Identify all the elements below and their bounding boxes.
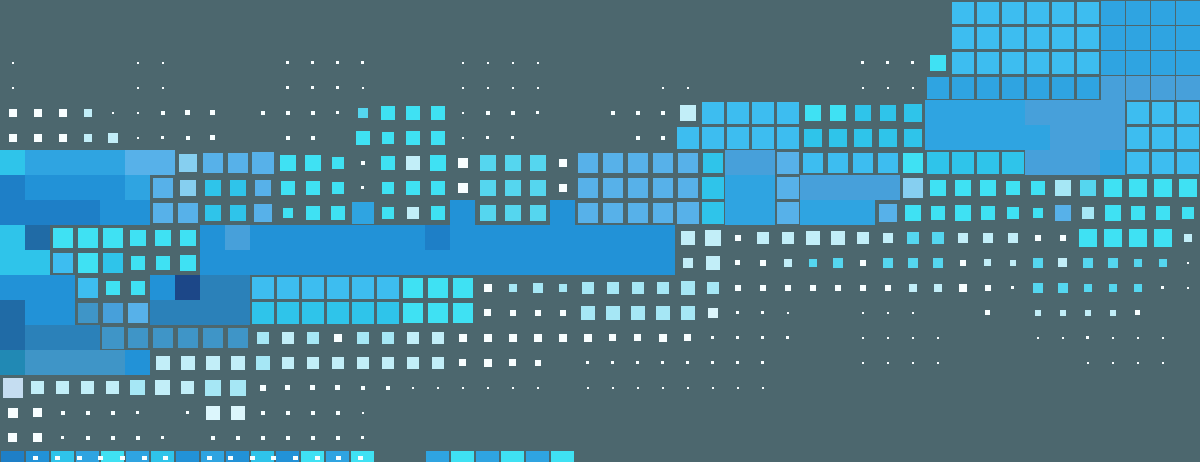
mosaic-tile [980, 180, 996, 196]
mosaic-tile [102, 327, 124, 349]
mosaic-tile [905, 205, 921, 221]
mosaic-tile [59, 109, 67, 117]
mosaic-tile [282, 332, 294, 344]
mosaic-tile [1008, 233, 1018, 243]
mosaic-tile [575, 250, 600, 275]
mosaic-tile [78, 253, 98, 273]
mosaic-tile [103, 303, 123, 323]
mosaic-tile [178, 203, 198, 223]
mosaic-tile [535, 360, 541, 366]
mosaic-tile [53, 253, 73, 273]
mosaic-tile [880, 105, 896, 121]
mosaic-tile [200, 225, 225, 250]
mosaic-tile [486, 111, 490, 115]
mosaic-tile [106, 281, 120, 295]
mosaic-tile [1137, 362, 1139, 364]
mosaic-tile [75, 175, 100, 200]
mosaic-tile [985, 285, 991, 291]
mosaic-tile [163, 456, 168, 460]
mosaic-tile [1055, 180, 1071, 196]
mosaic-tile [1176, 51, 1200, 75]
mosaic-tile [286, 61, 289, 64]
mosaic-tile [512, 387, 514, 389]
mosaic-tile [1161, 286, 1164, 289]
mosaic-tile [437, 387, 439, 389]
mosaic-tile [1052, 77, 1074, 99]
mosaic-tile [1002, 27, 1024, 49]
mosaic-tile [476, 451, 499, 462]
mosaic-tile [180, 230, 196, 246]
mosaic-tile [509, 334, 517, 342]
mosaic-tile [1137, 337, 1139, 339]
mosaic-tile [3, 378, 23, 398]
mosaic-tile [0, 200, 25, 225]
mosaic-tile [1179, 179, 1197, 197]
mosaic-tile [862, 362, 864, 364]
mosaic-tile [181, 381, 194, 394]
mosaic-tile [606, 306, 620, 320]
mosaic-tile [703, 153, 723, 173]
mosaic-tile [325, 225, 350, 250]
mosaic-tile [825, 200, 850, 225]
mosaic-tile [1033, 283, 1043, 293]
mosaic-tile [727, 127, 749, 149]
mosaic-tile [487, 387, 489, 389]
mosaic-tile [1035, 310, 1041, 316]
mosaic-tile [912, 362, 914, 364]
mosaic-tile [150, 150, 175, 175]
mosaic-tile [358, 456, 363, 460]
mosaic-tile [25, 325, 50, 350]
mosaic-tile [1100, 125, 1125, 150]
mosaic-tile [1131, 206, 1145, 220]
mosaic-tile [25, 350, 50, 375]
mosaic-tile [142, 456, 147, 460]
mosaic-tile [650, 250, 675, 275]
mosaic-tile [678, 178, 698, 198]
mosaic-tile [336, 61, 339, 64]
mosaic-tile [286, 436, 290, 440]
mosaic-tile [1112, 337, 1114, 339]
mosaic-tile [462, 137, 464, 139]
mosaic-tile [983, 233, 993, 243]
mosaic-tile [1000, 100, 1025, 125]
mosaic-tile [475, 250, 500, 275]
mosaic-tile [1101, 51, 1125, 75]
mosaic-tile [512, 87, 514, 89]
mosaic-tile [885, 285, 891, 291]
mosaic-tile [761, 311, 764, 314]
mosaic-tile [977, 2, 999, 24]
mosaic-tile [725, 200, 750, 225]
mosaic-tile [505, 180, 521, 196]
mosaic-tile [300, 225, 325, 250]
mosaic-tile [75, 325, 100, 350]
mosaic-tile [1060, 310, 1066, 316]
mosaic-tile [257, 332, 269, 344]
mosaic-tile [137, 62, 139, 64]
mosaic-tile [78, 303, 98, 323]
mosaic-tile [1176, 76, 1200, 100]
mosaic-tile [282, 357, 294, 369]
mosaic-tile [230, 205, 246, 221]
mosaic-tile [835, 285, 841, 291]
mosaic-tile [31, 381, 44, 394]
mosaic-tile [1050, 100, 1075, 125]
mosaic-tile [403, 278, 423, 298]
mosaic-tile [50, 300, 75, 325]
mosaic-tile [661, 136, 665, 140]
mosaic-tile [205, 180, 221, 196]
mosaic-tile [934, 284, 942, 292]
mosaic-tile [803, 153, 823, 173]
mosaic-tile [530, 205, 546, 221]
mosaic-tile [130, 380, 145, 395]
mosaic-tile [702, 127, 724, 149]
mosaic-tile [406, 106, 420, 120]
mosaic-tile [203, 153, 223, 173]
mosaic-tile [180, 180, 196, 196]
mosaic-tile [1025, 125, 1050, 150]
mosaic-tile [977, 27, 999, 49]
mosaic-tile [1101, 76, 1125, 100]
mosaic-tile [1084, 284, 1092, 292]
mosaic-tile [950, 125, 975, 150]
mosaic-tile [403, 303, 423, 323]
mosaic-tile [260, 385, 266, 391]
mosaic-tile [550, 225, 575, 250]
mosaic-tile [150, 300, 175, 325]
mosaic-tile [1127, 102, 1149, 124]
mosaic-tile [12, 62, 14, 64]
mosaic-tile [55, 456, 60, 460]
mosaic-tile [1127, 127, 1149, 149]
mosaic-tile [136, 411, 139, 414]
mosaic-tile [231, 356, 245, 370]
mosaic-tile [862, 87, 864, 89]
mosaic-tile [181, 356, 195, 370]
mosaic-tile [600, 250, 625, 275]
mosaic-tile [25, 250, 50, 275]
mosaic-tile [681, 231, 695, 245]
mosaic-tile [175, 275, 200, 300]
mosaic-tile [611, 111, 615, 115]
mosaic-tile [382, 357, 394, 369]
mosaic-tile [702, 177, 724, 199]
mosaic-tile [311, 136, 315, 140]
mosaic-tile [825, 175, 850, 200]
mosaic-tile [828, 153, 848, 173]
mosaic-tile [1007, 207, 1019, 219]
mosaic-tile [53, 228, 73, 248]
mosaic-tile [887, 362, 889, 364]
mosaic-tile [861, 61, 864, 64]
mosaic-tile [887, 87, 889, 89]
mosaic-tile [550, 250, 575, 275]
mosaic-tile [952, 77, 974, 99]
mosaic-tile [161, 136, 164, 139]
mosaic-tile [1159, 259, 1167, 267]
mosaic-tile [786, 336, 789, 339]
mosaic-tile [480, 180, 496, 196]
mosaic-tile [1058, 258, 1067, 267]
mosaic-tile [903, 153, 923, 173]
mosaic-tile [352, 302, 374, 324]
mosaic-tile [250, 250, 275, 275]
mosaic-tile [211, 436, 215, 440]
mosaic-tile [584, 334, 592, 342]
mosaic-tile [382, 332, 394, 344]
mosaic-tile [559, 334, 567, 342]
mosaic-tile [535, 310, 541, 316]
mosaic-tile [762, 387, 764, 389]
mosaic-tile [459, 359, 466, 366]
mosaic-tile [1176, 1, 1200, 25]
mosaic-tile [256, 356, 270, 370]
mosaic-tile [1126, 76, 1150, 100]
mosaic-tile [56, 381, 69, 394]
mosaic-tile [361, 386, 365, 390]
mosaic-tile [206, 406, 220, 420]
mosaic-tile [484, 334, 492, 342]
mosaic-tile [361, 436, 364, 439]
mosaic-tile [428, 278, 448, 298]
mosaic-tile [1134, 284, 1142, 292]
mosaic-tile [777, 102, 799, 124]
mosaic-tile [735, 260, 740, 265]
mosaic-tile [657, 282, 669, 294]
mosaic-tile [1083, 258, 1093, 268]
mosaic-tile [725, 175, 750, 200]
mosaic-tile [84, 109, 92, 117]
mosaic-tile [1126, 26, 1150, 50]
mosaic-tile [575, 225, 600, 250]
mosaic-tile [180, 255, 196, 271]
mosaic-tile [458, 183, 468, 193]
mosaic-tile [185, 110, 190, 115]
mosaic-tile [286, 111, 290, 115]
mosaic-tile [484, 359, 492, 367]
mosaic-tile [1151, 1, 1175, 25]
mosaic-tile [225, 225, 250, 250]
mosaic-tile [559, 159, 567, 167]
mosaic-tile [777, 127, 799, 149]
mosaic-tile [1035, 235, 1041, 241]
mosaic-tile [1006, 181, 1020, 195]
mosaic-tile [908, 258, 918, 268]
mosaic-tile [1156, 206, 1170, 220]
mosaic-tile [1077, 27, 1099, 49]
mosaic-tile [50, 350, 75, 375]
mosaic-tile [450, 250, 475, 275]
mosaic-tile [1184, 234, 1192, 242]
mosaic-tile [505, 155, 521, 171]
mosaic-tile [1082, 207, 1094, 219]
mosaic-tile [1126, 51, 1150, 75]
mosaic-tile [382, 207, 394, 219]
mosaic-tile [137, 87, 139, 89]
mosaic-tile [1109, 284, 1117, 292]
mosaic-tile [1187, 262, 1189, 264]
mosaic-tile [205, 380, 221, 396]
mosaic-tile [950, 100, 975, 125]
mosaic-tile [362, 87, 364, 89]
mosaic-tile [911, 61, 914, 64]
mosaic-tile [236, 436, 240, 440]
mosaic-tile [757, 232, 769, 244]
mosaic-tile [103, 253, 123, 273]
mosaic-tile [534, 334, 542, 342]
mosaic-tile [1110, 310, 1116, 316]
mosaic-tile [352, 277, 374, 299]
mosaic-tile [1000, 125, 1025, 150]
mosaic-tile [636, 361, 639, 364]
mosaic-tile [305, 155, 321, 171]
mosaic-tile [862, 312, 864, 314]
mosaic-tile [230, 180, 246, 196]
mosaic-tile [927, 152, 949, 174]
mosaic-tile [200, 300, 225, 325]
mosaic-tile [301, 451, 324, 462]
mosaic-tile [830, 105, 846, 121]
mosaic-tile [228, 456, 233, 460]
mosaic-tile [683, 258, 693, 268]
mosaic-tile [336, 456, 341, 460]
mosaic-tile [176, 451, 199, 462]
mosaic-tile [1027, 2, 1049, 24]
mosaic-tile [315, 456, 320, 460]
mosaic-tile [277, 277, 299, 299]
mosaic-tile [612, 387, 614, 389]
mosaic-tile [855, 105, 871, 121]
mosaic-tile [75, 200, 100, 225]
mosaic-tile [578, 203, 598, 223]
mosaic-tile [128, 303, 148, 323]
mosaic-tile [484, 284, 492, 292]
mosaic-tile [1182, 207, 1194, 219]
mosaic-tile [106, 381, 119, 394]
mosaic-tile [854, 129, 872, 147]
mosaic-tile [537, 387, 539, 389]
mosaic-tile [25, 275, 50, 300]
mosaic-tile [286, 136, 290, 140]
mosaic-tile [653, 178, 673, 198]
mosaic-tile [853, 153, 873, 173]
mosaic-tile [84, 134, 92, 142]
mosaic-tile [958, 233, 968, 243]
mosaic-tile [977, 152, 999, 174]
mosaic-tile [108, 133, 118, 143]
mosaic-tile [628, 153, 648, 173]
mosaic-tile [702, 102, 724, 124]
mosaic-tile [459, 334, 467, 342]
mosaic-tile [431, 181, 445, 195]
mosaic-tile [361, 61, 364, 64]
mosaic-tile [361, 161, 365, 165]
mosaic-tile [33, 408, 42, 417]
mosaic-tile [750, 200, 775, 225]
mosaic-tile [458, 158, 468, 168]
mosaic-tile [100, 150, 125, 175]
mosaic-tile [252, 277, 274, 299]
mosaic-tile [335, 385, 340, 390]
mosaic-tile [306, 181, 320, 195]
mosaic-tile [1037, 337, 1039, 339]
mosaic-tile [603, 153, 623, 173]
mosaic-tile [130, 230, 146, 246]
mosaic-tile [487, 87, 489, 89]
mosaic-tile [927, 77, 949, 99]
mosaic-tile [327, 277, 349, 299]
mosaic-tile [752, 102, 774, 124]
mosaic-tile [480, 205, 496, 221]
mosaic-tile [711, 336, 714, 339]
mosaic-tile [432, 332, 444, 344]
mosaic-tile [653, 153, 673, 173]
mosaic-tile [1077, 77, 1099, 99]
mosaic-tile [1085, 310, 1091, 316]
mosaic-tile [386, 386, 390, 390]
mosaic-tile [25, 300, 50, 325]
mosaic-tile [1010, 260, 1016, 266]
mosaic-tile [631, 306, 645, 320]
mosaic-tile [1033, 258, 1043, 268]
mosaic-tile [285, 385, 290, 390]
mosaic-tile [1104, 179, 1122, 197]
mosaic-tile [687, 87, 689, 89]
mosaic-tile [201, 451, 224, 462]
mosaic-tile [777, 202, 799, 224]
mosaic-tile [425, 225, 450, 250]
mosaic-tile [12, 87, 14, 89]
mosaic-tile [501, 451, 524, 462]
mosaic-tile [1060, 235, 1066, 241]
mosaic-tile [931, 206, 945, 220]
mosaic-tile [536, 111, 539, 114]
mosaic-tile [286, 411, 290, 415]
mosaic-tile [261, 111, 265, 115]
mosaic-tile [1177, 152, 1199, 174]
mosaic-tile [407, 332, 419, 344]
mosaic-tile [1052, 27, 1074, 49]
mosaic-tile [59, 134, 67, 142]
mosaic-tile [125, 350, 150, 375]
mosaic-tile [228, 328, 248, 348]
mosaic-tile [582, 282, 594, 294]
mosaic-tile [425, 250, 450, 275]
mosaic-tile [1, 451, 24, 462]
mosaic-tile [737, 387, 739, 389]
mosaic-tile [206, 356, 220, 370]
mosaic-tile [511, 136, 514, 139]
mosaic-tile [200, 250, 225, 275]
mosaic-tile [586, 361, 589, 364]
mosaic-tile [1002, 152, 1024, 174]
mosaic-tile [525, 250, 550, 275]
mosaic-tile [559, 184, 567, 192]
mosaic-tile [860, 260, 866, 266]
mosaic-tile [735, 235, 741, 241]
mosaic-tile [100, 175, 125, 200]
mosaic-tile [761, 336, 764, 339]
mosaic-tile [1135, 310, 1140, 315]
mosaic-tile [952, 2, 974, 24]
mosaic-tile [509, 359, 516, 366]
mosaic-tile [1011, 286, 1014, 289]
mosaic-tile [277, 302, 299, 324]
mosaic-tile [735, 285, 741, 291]
mosaic-tile [357, 357, 369, 369]
